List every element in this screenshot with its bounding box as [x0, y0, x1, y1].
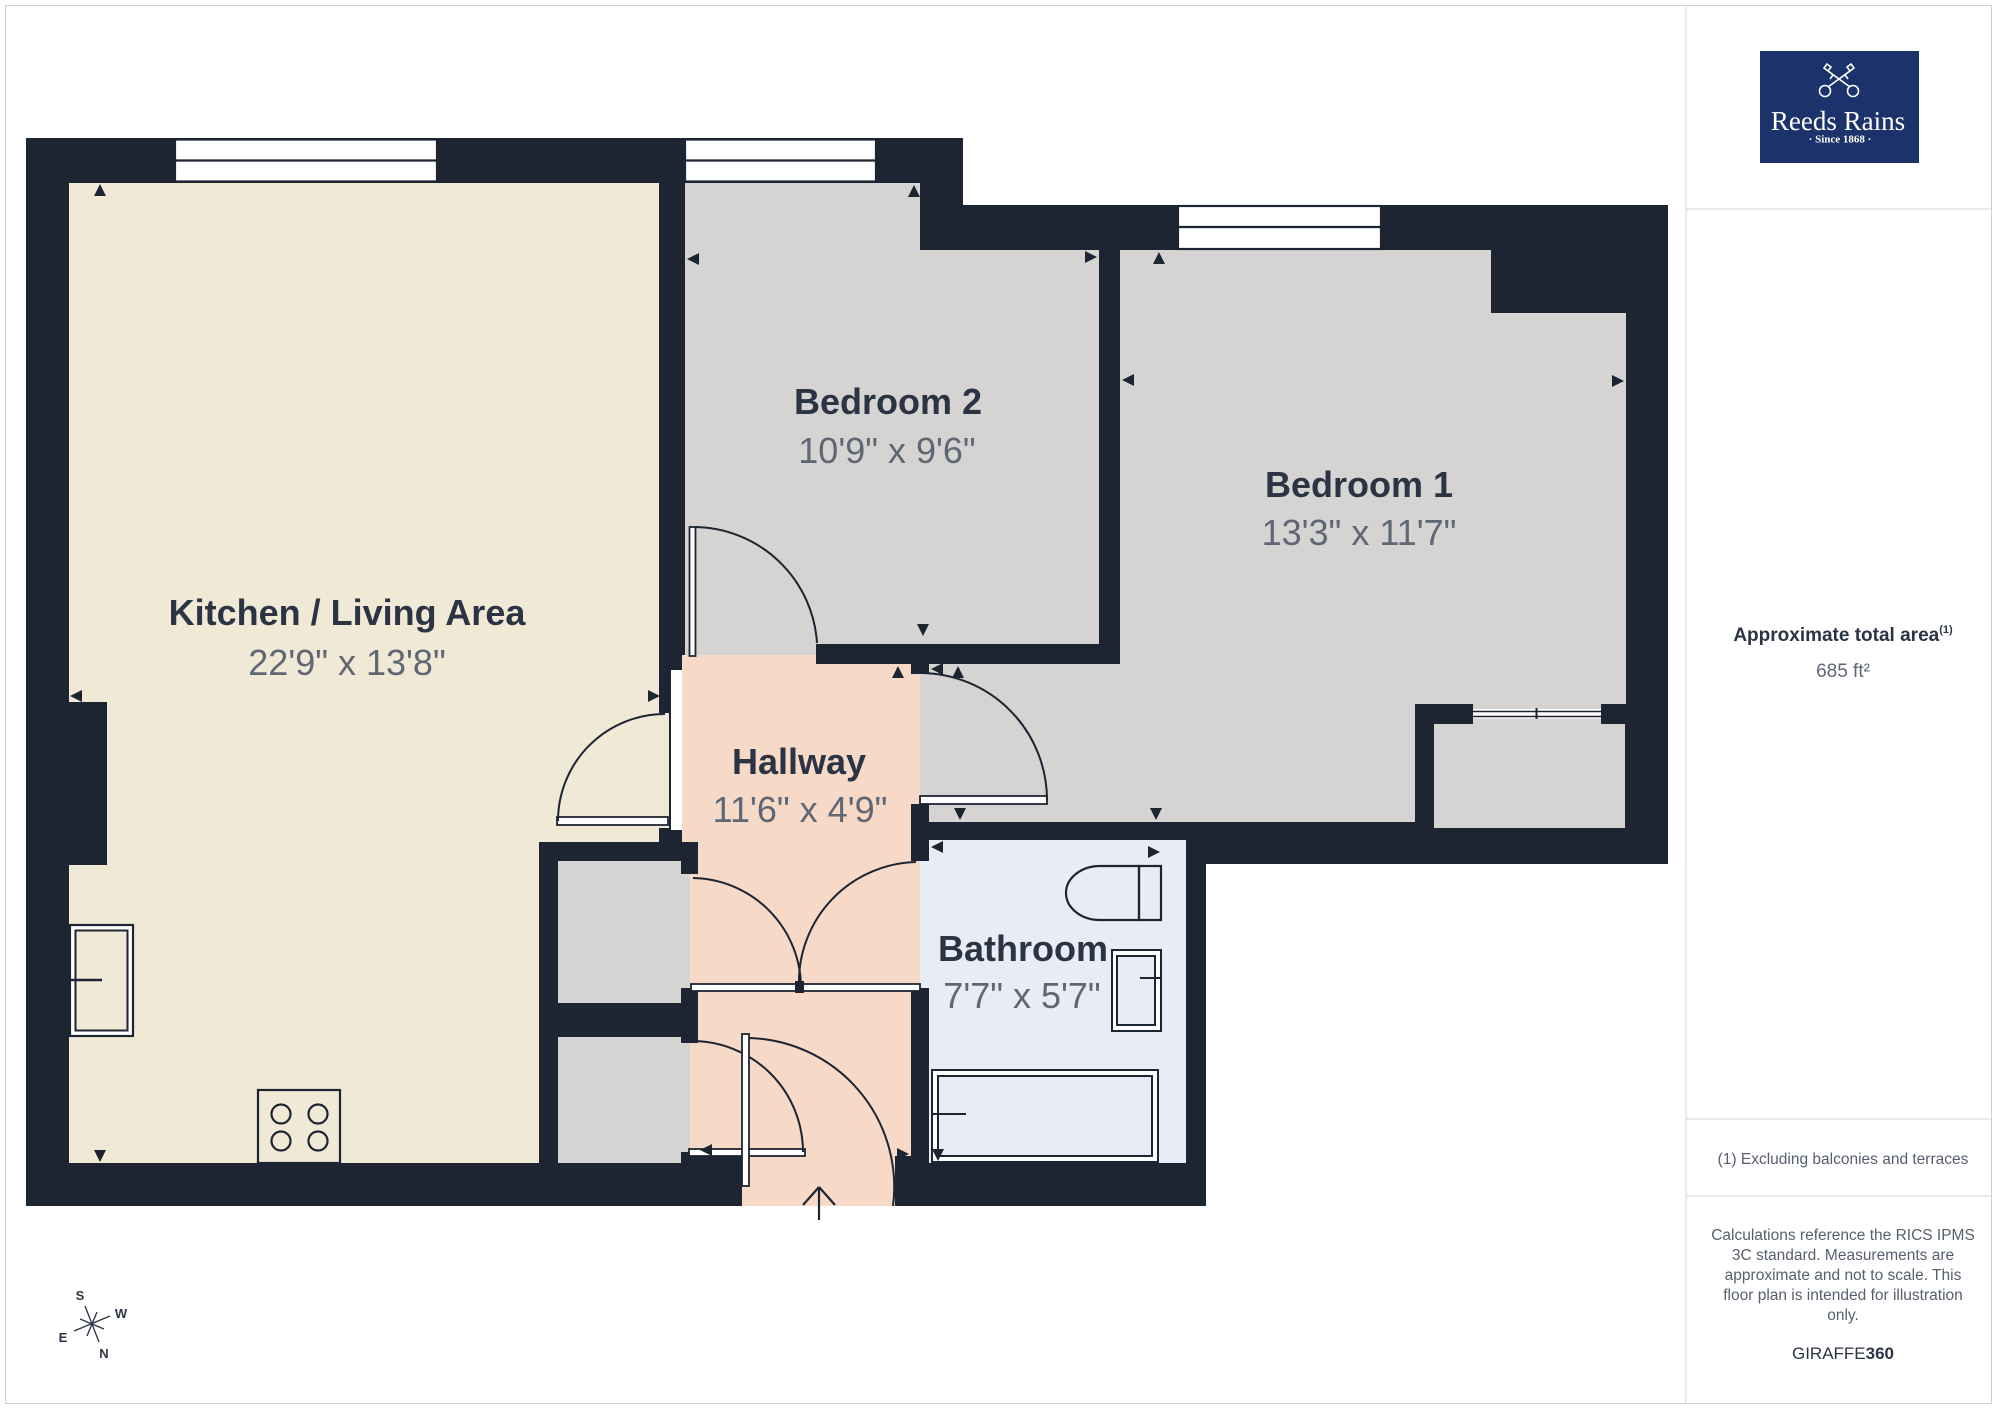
svg-text:11'6" x 4'9": 11'6" x 4'9"	[713, 789, 888, 830]
svg-text:Bedroom 1: Bedroom 1	[1265, 464, 1453, 505]
svg-text:approximate and not to scale.: approximate and not to scale. This	[1725, 1267, 1962, 1284]
svg-text:22'9" x 13'8": 22'9" x 13'8"	[248, 642, 445, 683]
svg-text:only.: only.	[1827, 1307, 1859, 1324]
svg-text:E: E	[59, 1330, 68, 1345]
svg-text:7'7" x 5'7": 7'7" x 5'7"	[943, 975, 1100, 1016]
svg-text:685 ft²: 685 ft²	[1816, 661, 1870, 682]
svg-text:· Since 1868 ·: · Since 1868 ·	[1809, 134, 1872, 146]
svg-text:13'3" x 11'7": 13'3" x 11'7"	[1262, 512, 1457, 553]
svg-text:GIRAFFE360: GIRAFFE360	[1792, 1344, 1894, 1363]
svg-text:3C standard. Measurements are: 3C standard. Measurements are	[1732, 1247, 1954, 1264]
svg-text:Hallway: Hallway	[732, 741, 866, 782]
svg-text:Approximate total area(1): Approximate total area(1)	[1733, 624, 1953, 646]
svg-text:W: W	[115, 1306, 128, 1321]
svg-text:(1) Excluding balconies and te: (1) Excluding balconies and terraces	[1718, 1151, 1969, 1168]
svg-text:N: N	[99, 1346, 108, 1361]
svg-text:floor plan is intended for ill: floor plan is intended for illustration	[1723, 1287, 1963, 1304]
svg-text:Bedroom 2: Bedroom 2	[794, 381, 982, 422]
svg-text:Bathroom: Bathroom	[938, 928, 1108, 969]
svg-text:S: S	[76, 1288, 85, 1303]
svg-text:Kitchen / Living Area: Kitchen / Living Area	[169, 592, 527, 633]
svg-text:Calculations reference the RIC: Calculations reference the RICS IPMS	[1711, 1227, 1975, 1244]
svg-text:10'9" x 9'6": 10'9" x 9'6"	[798, 430, 975, 471]
svg-text:Reeds Rains: Reeds Rains	[1771, 106, 1905, 136]
